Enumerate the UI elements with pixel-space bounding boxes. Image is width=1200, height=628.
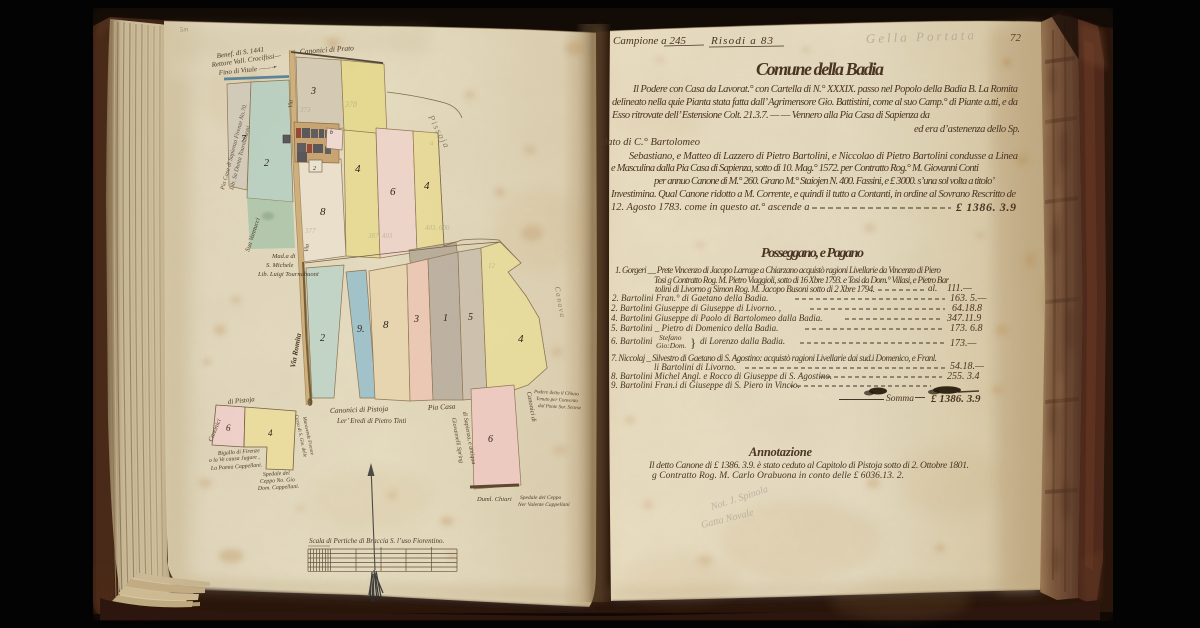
svg-text:e Masculina dalla Pia Casa di: e Masculina dalla Pia Casa di Sapienza, … <box>611 163 979 174</box>
svg-text:Posseggano, e Pagano: Posseggano, e Pagano <box>761 246 864 261</box>
svg-text:Lib. Luigi Tournabuoni: Lib. Luigi Tournabuoni <box>257 271 319 278</box>
svg-text:8: 8 <box>320 206 326 218</box>
svg-text:8: 8 <box>383 319 389 331</box>
svg-text:Investimina. Qual Canone ridot: Investimina. Qual Canone ridotto a M. Co… <box>610 189 1016 200</box>
svg-text:Via: Via <box>288 100 295 108</box>
svg-text:6: 6 <box>390 186 396 198</box>
svg-text:Mad.a di: Mad.a di <box>271 253 296 260</box>
svg-text:2. Bartolini Fran.° di Gaetano: 2. Bartolini Fran.° di Gaetano della Bad… <box>612 293 768 303</box>
svg-text:al.: al. <box>928 283 937 293</box>
svg-text:Somma: Somma <box>886 394 914 404</box>
svg-text:2: 2 <box>313 166 316 172</box>
svg-text:dato di C.° Bartolomeo: dato di C.° Bartolomeo <box>602 137 700 148</box>
svg-text:Esso ritrovate dell’ Estension: Esso ritrovate dell’ Estensione Colt. 21… <box>611 110 930 121</box>
svg-text:Campione a 245: Campione a 245 <box>613 35 687 47</box>
svg-text:173. 6.8: 173. 6.8 <box>950 323 983 334</box>
svg-text:Via: Via <box>304 244 311 252</box>
svg-text:378: 378 <box>344 100 357 109</box>
svg-text:per annuo Canone di M.° 260. G: per annuo Canone di M.° 260. Grano M.° S… <box>653 176 996 187</box>
svg-text:S. Michele: S. Michele <box>266 262 294 269</box>
svg-text:a: a <box>430 139 434 147</box>
svg-text:6. Bartolini: 6. Bartolini <box>611 336 653 346</box>
svg-text:12. Agosto 1783. come in quest: 12. Agosto 1783. come in questo at.° asc… <box>611 202 810 213</box>
svg-text:Spedale del Ceppo: Spedale del Ceppo <box>520 495 561 501</box>
svg-text:6: 6 <box>488 434 493 445</box>
svg-text:2: 2 <box>264 158 269 169</box>
svg-text:Ler’ Eredi di Pietro Tinti: Ler’ Eredi di Pietro Tinti <box>336 417 406 425</box>
svg-text:4: 4 <box>424 180 430 192</box>
svg-text:1: 1 <box>443 313 448 324</box>
svg-text:Gio:Dom.: Gio:Dom. <box>656 341 686 350</box>
svg-text:387. 403: 387. 403 <box>367 232 393 240</box>
svg-text:Sebastiano, e Matteo di Lazzer: Sebastiano, e Matteo di Lazzero di Pietr… <box>629 151 1018 162</box>
svg-text:£ 1386. 3.9: £ 1386. 3.9 <box>955 200 1016 214</box>
svg-text:ed era d’astenenza dello Sp.: ed era d’astenenza dello Sp. <box>914 124 1020 135</box>
svg-text:5. Bartolini _ Pietro di Domen: 5. Bartolini _ Pietro di Domenico della … <box>611 323 778 333</box>
svg-text:3: 3 <box>413 314 419 325</box>
svg-text:b: b <box>330 130 333 136</box>
svg-text:4. Bartolini Giuseppe di Paolo: 4. Bartolini Giuseppe di Paolo di Bartol… <box>611 313 823 323</box>
svg-text:g Contratto Rog. M. Carlo Orab: g Contratto Rog. M. Carlo Orabuona in co… <box>652 471 904 481</box>
svg-text:Annotazione: Annotazione <box>748 445 812 459</box>
svg-text:Risodi a 83: Risodi a 83 <box>710 35 774 47</box>
svg-text:}: } <box>690 335 696 350</box>
svg-text:4: 4 <box>355 163 361 175</box>
svg-text:4: 4 <box>268 428 273 438</box>
svg-text:3: 3 <box>310 86 316 97</box>
svg-text:377: 377 <box>304 227 316 235</box>
svg-text:5: 5 <box>468 312 473 323</box>
svg-text:9.: 9. <box>357 324 365 335</box>
svg-text:delineato nella quie Pianta st: delineato nella quie Pianta stata fatta … <box>612 97 1018 108</box>
svg-text:255. 3.4: 255. 3.4 <box>947 371 980 382</box>
svg-text:Il Podere con Casa da Lavorat.: Il Podere con Casa da Lavorat.° con Cart… <box>632 84 1018 95</box>
svg-text:373: 373 <box>299 106 311 114</box>
svg-text:2: 2 <box>320 333 325 344</box>
svg-text:1. Gorgeri __ Prete Vincenzo d: 1. Gorgeri __ Prete Vincenzo di Jacopo L… <box>615 265 941 275</box>
svg-text:2. Bartolini Giuseppe di Giuse: 2. Bartolini Giuseppe di Giuseppe di Liv… <box>611 303 781 313</box>
svg-text:173.—: 173.— <box>950 338 977 349</box>
svg-text:£ 1386. 3.9: £ 1386. 3.9 <box>930 393 981 405</box>
svg-text:Scala di Pertiche di Braccia S: Scala di Pertiche di Braccia S. l’uso Fi… <box>309 537 444 545</box>
svg-text:Duml. Chiari: Duml. Chiari <box>476 496 512 503</box>
svg-text:Comune della Badia: Comune della Badia <box>756 59 884 79</box>
svg-text:9. Bartolini Fran.i di Giusepp: 9. Bartolini Fran.i di Giuseppe di S. Pi… <box>611 380 800 390</box>
svg-text:6: 6 <box>226 423 231 433</box>
svg-text:Il detto Canone di £ 1386. 3.9: Il detto Canone di £ 1386. 3.9. è stato … <box>648 461 969 471</box>
svg-text:Pia Casa: Pia Casa <box>427 402 456 413</box>
svg-text:72: 72 <box>1010 32 1022 44</box>
svg-text:Ner Valente Cappellani: Ner Valente Cappellani <box>517 502 570 508</box>
svg-text:4: 4 <box>518 333 524 345</box>
svg-text:12: 12 <box>488 262 496 270</box>
svg-text:5m: 5m <box>179 25 188 34</box>
svg-text:di Lorenzo dalla Badia.: di Lorenzo dalla Badia. <box>700 336 785 346</box>
svg-text:403. 600: 403. 600 <box>425 224 450 232</box>
